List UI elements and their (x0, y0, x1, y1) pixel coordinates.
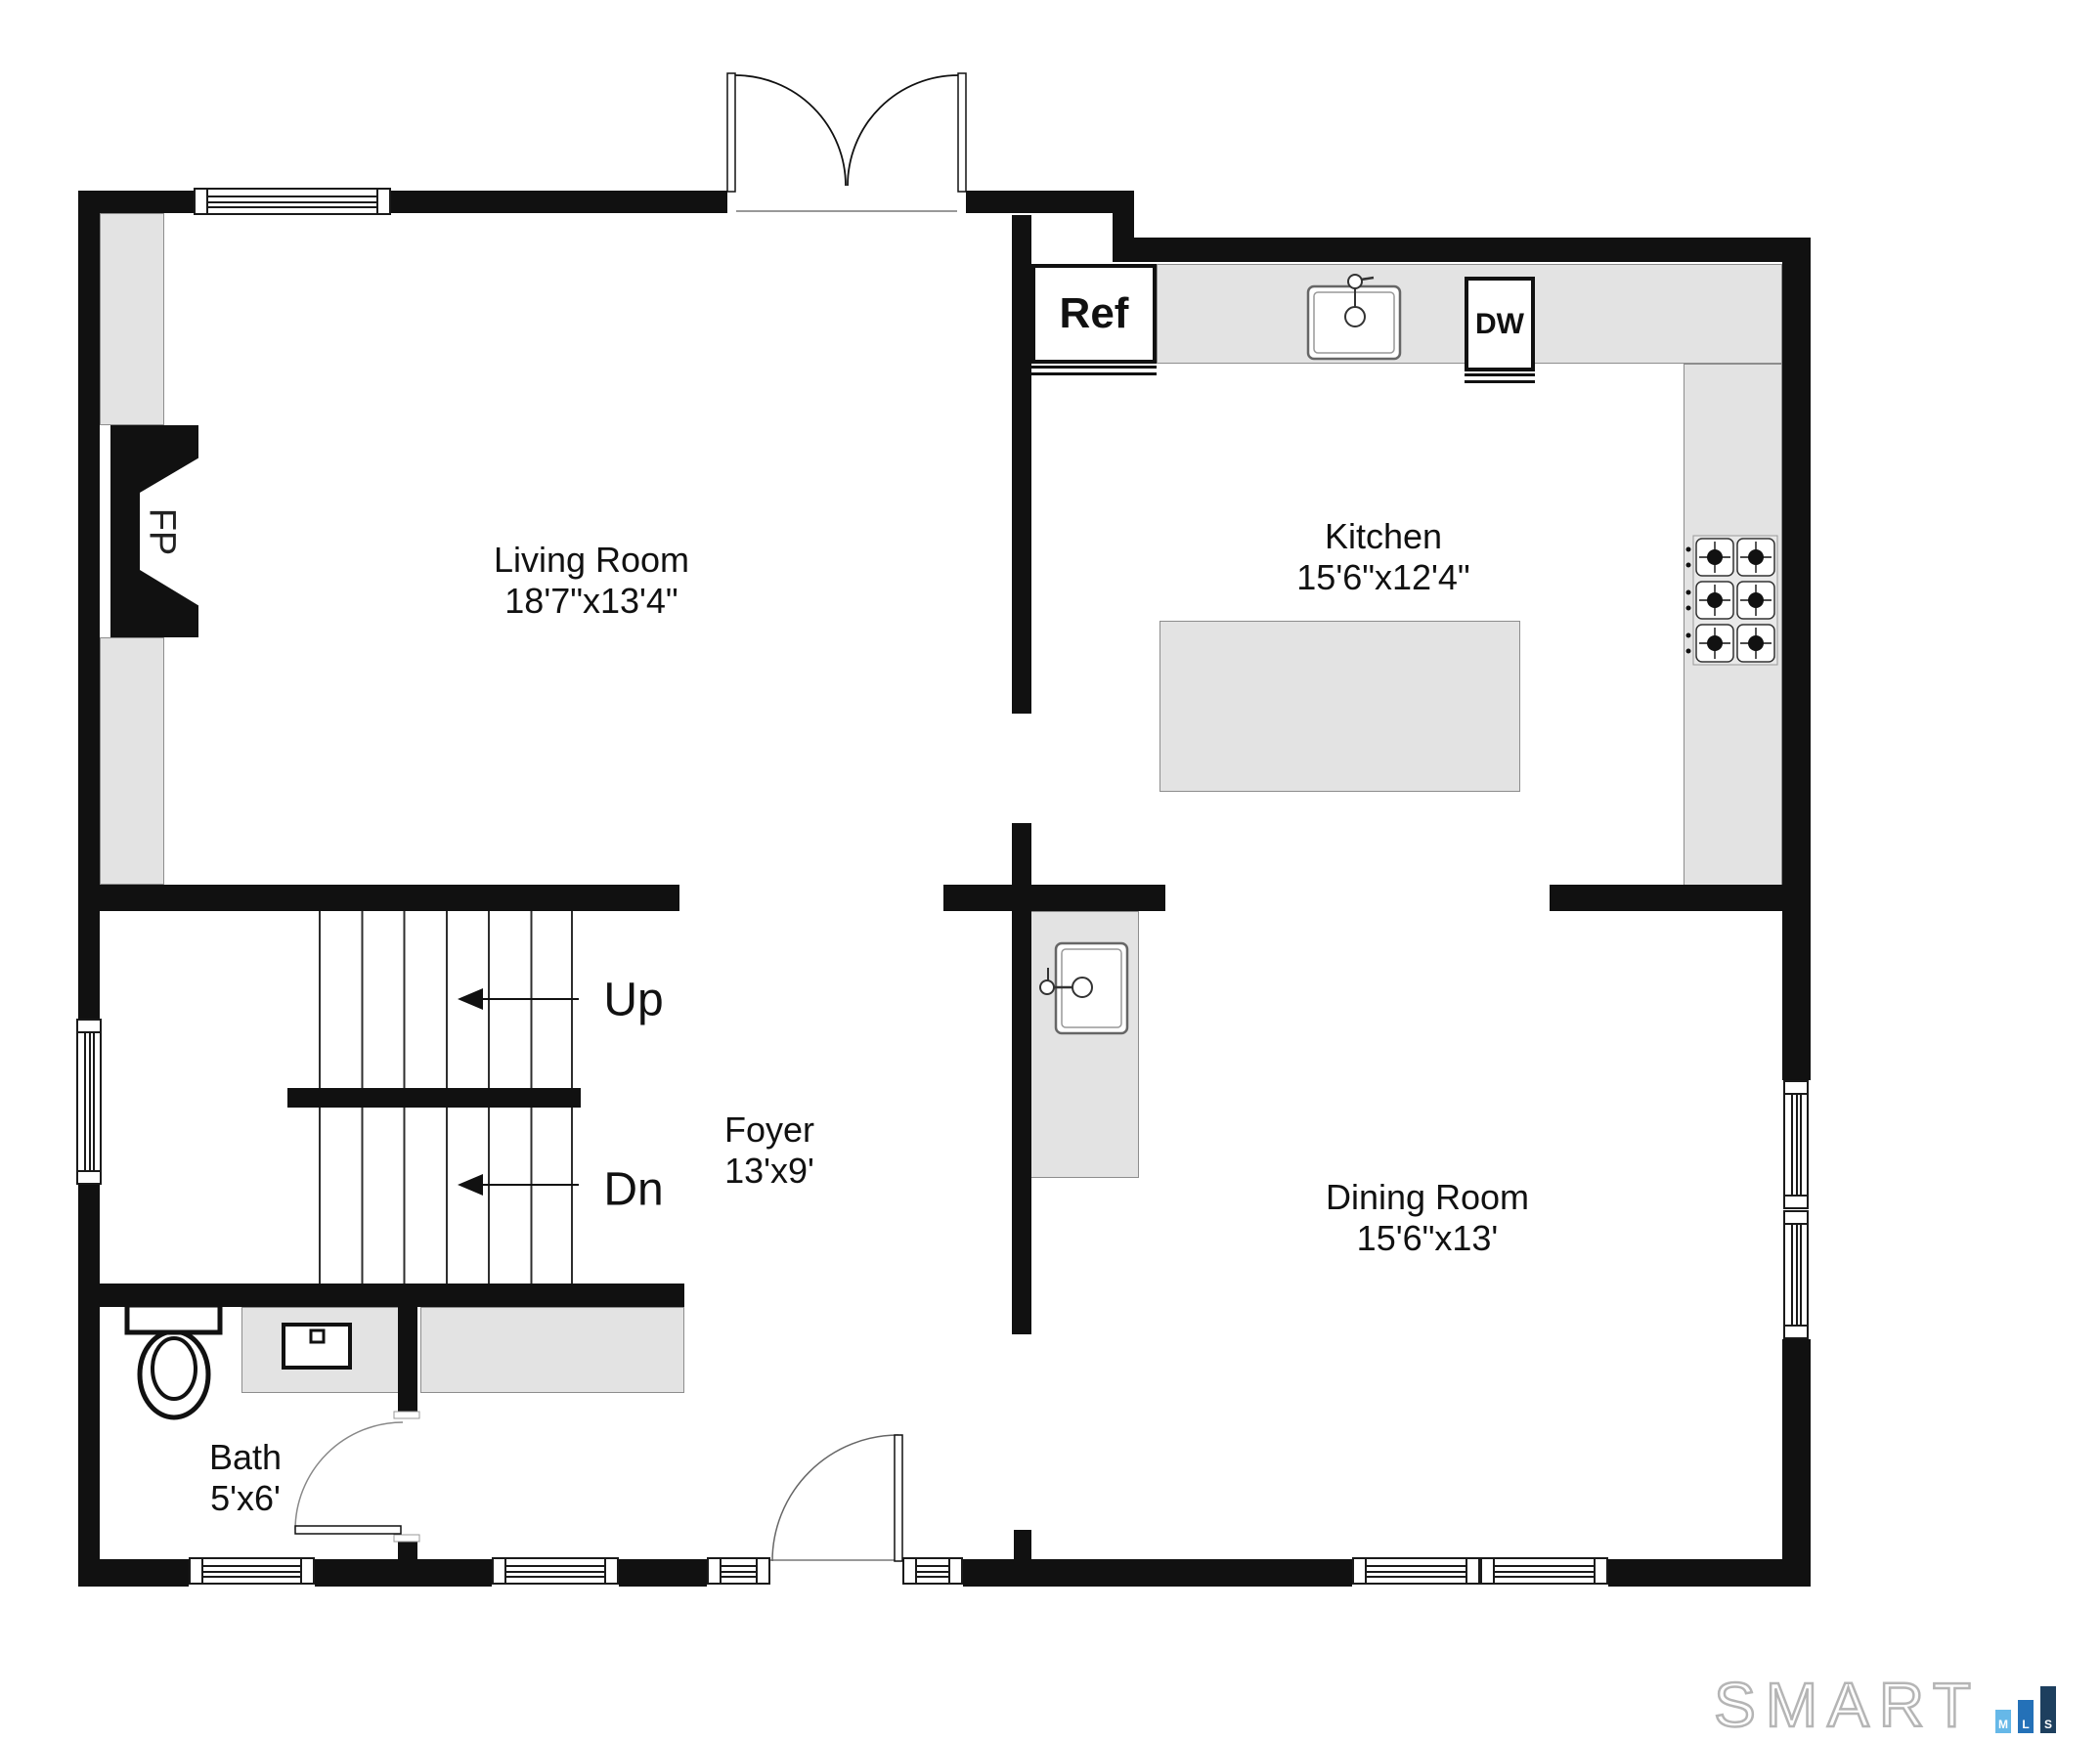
dishwasher-front (1465, 373, 1535, 383)
wall (966, 191, 1134, 213)
understair-closet (420, 1307, 684, 1393)
double-door (727, 73, 966, 211)
window-line (916, 1565, 949, 1567)
window-line (1494, 1576, 1595, 1578)
room-label-kitchen: Kitchen 15'6"x12'4" (1296, 516, 1469, 598)
room-name: Dining Room (1326, 1177, 1529, 1218)
wall (1782, 1339, 1811, 1587)
floor-plan: Ref DW Living Room 18'7"x13'4" Kitchen 1… (0, 0, 2100, 1741)
refrigerator: Ref (1031, 264, 1157, 364)
bath-vanity (241, 1307, 403, 1393)
wall (1608, 1559, 1811, 1587)
room-dims: 15'6"x13' (1326, 1218, 1529, 1259)
window (492, 1557, 619, 1585)
window-line (93, 1032, 95, 1171)
window-line (89, 1032, 91, 1171)
window-line (207, 206, 377, 208)
stairs-down-label: Dn (603, 1163, 663, 1217)
wall (943, 885, 1165, 911)
window-line (916, 1576, 949, 1578)
window (194, 188, 391, 215)
wall (1550, 885, 1782, 911)
room-name: Kitchen (1296, 516, 1469, 557)
window-line (1796, 1224, 1798, 1326)
window-line (1791, 1224, 1793, 1326)
toilet-icon (127, 1305, 220, 1417)
room-name: Foyer (724, 1110, 814, 1151)
fireplace-icon: FP (110, 425, 199, 637)
smartmls-wordmark: SMART (1714, 1676, 1981, 1733)
window-line (1791, 1094, 1793, 1196)
mls-bar-s: S (2040, 1686, 2056, 1733)
wall (1113, 213, 1134, 239)
stair-landing (287, 1088, 581, 1108)
wall (1113, 238, 1811, 262)
mls-letter: M (1998, 1718, 2008, 1731)
window-line (207, 196, 377, 197)
room-dims: 15'6"x12'4" (1296, 557, 1469, 598)
window-line (505, 1571, 605, 1573)
room-label-foyer: Foyer 13'x9' (724, 1110, 814, 1192)
mls-bar-m: M (1995, 1710, 2011, 1733)
room-dims: 5'x6' (209, 1478, 282, 1519)
window-line (505, 1576, 605, 1578)
wall (1014, 1530, 1031, 1559)
kitchen-island (1159, 621, 1520, 792)
wall (1782, 238, 1811, 1080)
smartmls-logo: SMART M L S (1714, 1676, 2056, 1733)
front-door (770, 1435, 902, 1561)
halfbath-sink-counter (1029, 911, 1139, 1178)
window (189, 1557, 315, 1585)
window-line (84, 1032, 86, 1171)
room-label-living: Living Room 18'7"x13'4" (494, 540, 689, 622)
mls-letter: L (2022, 1718, 2029, 1731)
wall (78, 1559, 189, 1587)
wall (315, 1559, 492, 1587)
dishwasher: DW (1465, 277, 1535, 371)
window-line (505, 1565, 605, 1567)
window-line (1800, 1224, 1802, 1326)
room-name: Living Room (494, 540, 689, 581)
window-line (207, 201, 377, 203)
wall (398, 1307, 417, 1415)
wall (100, 885, 679, 911)
wall (391, 191, 727, 213)
wall (398, 1538, 417, 1559)
mls-bars: M L S (1989, 1686, 2056, 1733)
stairs-down-run (319, 1108, 573, 1284)
window-line (202, 1571, 301, 1573)
window-line (202, 1576, 301, 1578)
fireplace-label: FP (142, 508, 183, 556)
window-line (721, 1565, 757, 1567)
window-line (1494, 1571, 1595, 1573)
hearth-strip-upper (100, 213, 164, 425)
window-line (721, 1571, 757, 1573)
window (1783, 1210, 1809, 1339)
window-line (1796, 1094, 1798, 1196)
window-line (1366, 1565, 1466, 1567)
room-dims: 13'x9' (724, 1151, 814, 1192)
room-name: Bath (209, 1437, 282, 1478)
window-line (1800, 1094, 1802, 1196)
mls-letter: S (2044, 1718, 2052, 1731)
wall (78, 191, 194, 213)
window (902, 1557, 963, 1585)
window-line (202, 1565, 301, 1567)
wall (1012, 215, 1031, 714)
window-line (1366, 1571, 1466, 1573)
window (1783, 1080, 1809, 1209)
refrigerator-front (1031, 366, 1157, 375)
window (1480, 1557, 1608, 1585)
window-line (916, 1571, 949, 1573)
stairs-up-run (319, 911, 573, 1088)
room-label-bath: Bath 5'x6' (209, 1437, 282, 1519)
window (1352, 1557, 1480, 1585)
window (707, 1557, 770, 1585)
room-label-dining: Dining Room 15'6"x13' (1326, 1177, 1529, 1259)
wall (1012, 823, 1031, 1334)
bath-door (295, 1412, 419, 1542)
wall (619, 1559, 707, 1587)
kitchen-counter-right (1684, 364, 1782, 888)
window-line (1366, 1576, 1466, 1578)
room-dims: 18'7"x13'4" (494, 581, 689, 622)
wall (78, 191, 100, 1587)
mls-bar-l: L (2018, 1700, 2034, 1733)
window (76, 1019, 102, 1185)
hearth-strip-lower (100, 637, 164, 885)
window-line (1494, 1565, 1595, 1567)
wall (78, 1284, 684, 1307)
wall (963, 1559, 1352, 1587)
window-line (721, 1576, 757, 1578)
stairs-up-label: Up (603, 974, 663, 1027)
